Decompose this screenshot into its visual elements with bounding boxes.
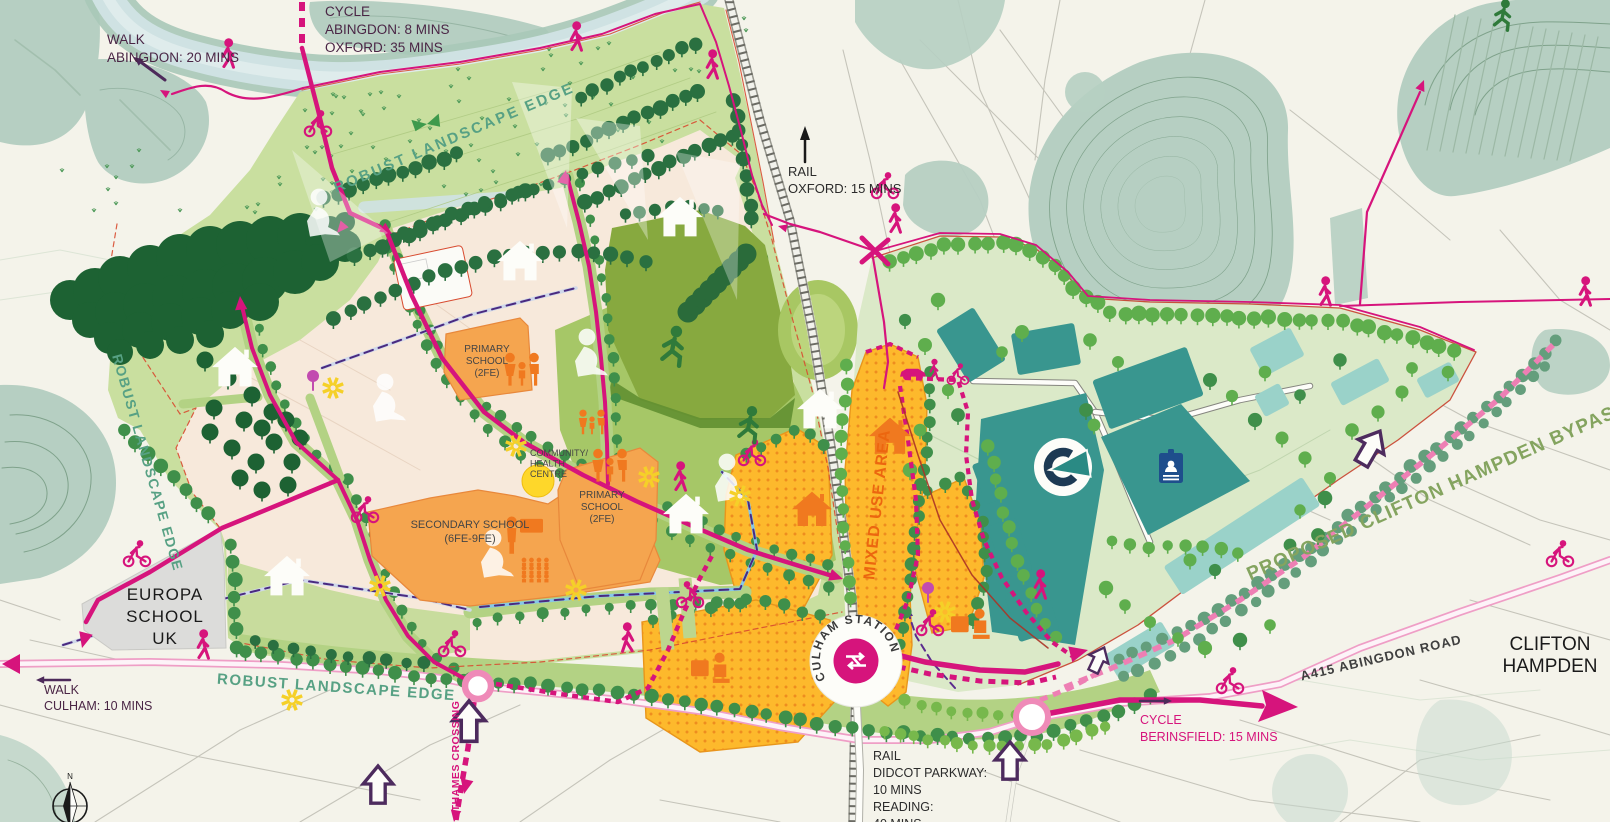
- svg-text:CYCLE: CYCLE: [325, 4, 370, 19]
- svg-text:ABINGDON: 8 MINS: ABINGDON: 8 MINS: [325, 22, 450, 37]
- svg-text:HEALTH: HEALTH: [530, 459, 565, 469]
- svg-text:(6FE-9FE): (6FE-9FE): [444, 533, 495, 545]
- svg-text:SCHOOL: SCHOOL: [466, 356, 509, 367]
- svg-text:CENTRE: CENTRE: [530, 469, 567, 479]
- svg-text:WALK: WALK: [44, 683, 80, 697]
- svg-text:HAMPDEN: HAMPDEN: [1502, 656, 1597, 677]
- svg-text:RAIL: RAIL: [788, 164, 817, 179]
- svg-text:OXFORD: 15 MINS: OXFORD: 15 MINS: [788, 181, 902, 196]
- svg-text:SCHOOL: SCHOOL: [581, 502, 624, 513]
- svg-text:THAMES CROSSING: THAMES CROSSING: [450, 701, 462, 812]
- svg-text:ABINGDON: 20 MINS: ABINGDON: 20 MINS: [107, 50, 239, 65]
- svg-text:DIDCOT PARKWAY:: DIDCOT PARKWAY:: [873, 766, 987, 780]
- svg-text:(2FE): (2FE): [590, 514, 615, 525]
- svg-text:UK: UK: [152, 629, 178, 648]
- svg-text:10 MINS: 10 MINS: [873, 783, 922, 797]
- svg-text:READING:: READING:: [873, 800, 933, 814]
- svg-text:PRIMARY: PRIMARY: [464, 344, 510, 355]
- svg-text:PRIMARY: PRIMARY: [579, 490, 625, 501]
- svg-text:OXFORD: 35 MINS: OXFORD: 35 MINS: [325, 40, 443, 55]
- svg-text:CLIFTON: CLIFTON: [1510, 634, 1591, 655]
- svg-text:CULHAM: 10 MINS: CULHAM: 10 MINS: [44, 699, 152, 713]
- svg-text:(2FE): (2FE): [475, 368, 500, 379]
- svg-text:RAIL: RAIL: [873, 749, 901, 763]
- svg-text:SECONDARY SCHOOL: SECONDARY SCHOOL: [411, 519, 530, 531]
- svg-text:40 MINS: 40 MINS: [873, 817, 922, 822]
- svg-text:BERINSFIELD: 15 MINS: BERINSFIELD: 15 MINS: [1140, 730, 1278, 744]
- svg-text:CYCLE: CYCLE: [1140, 713, 1182, 727]
- svg-text:SCHOOL: SCHOOL: [126, 607, 204, 626]
- svg-text:EUROPA: EUROPA: [127, 585, 204, 604]
- svg-text:WALK: WALK: [107, 32, 145, 47]
- svg-text:COMMUNITY/: COMMUNITY/: [530, 448, 588, 458]
- svg-text:N: N: [67, 772, 73, 781]
